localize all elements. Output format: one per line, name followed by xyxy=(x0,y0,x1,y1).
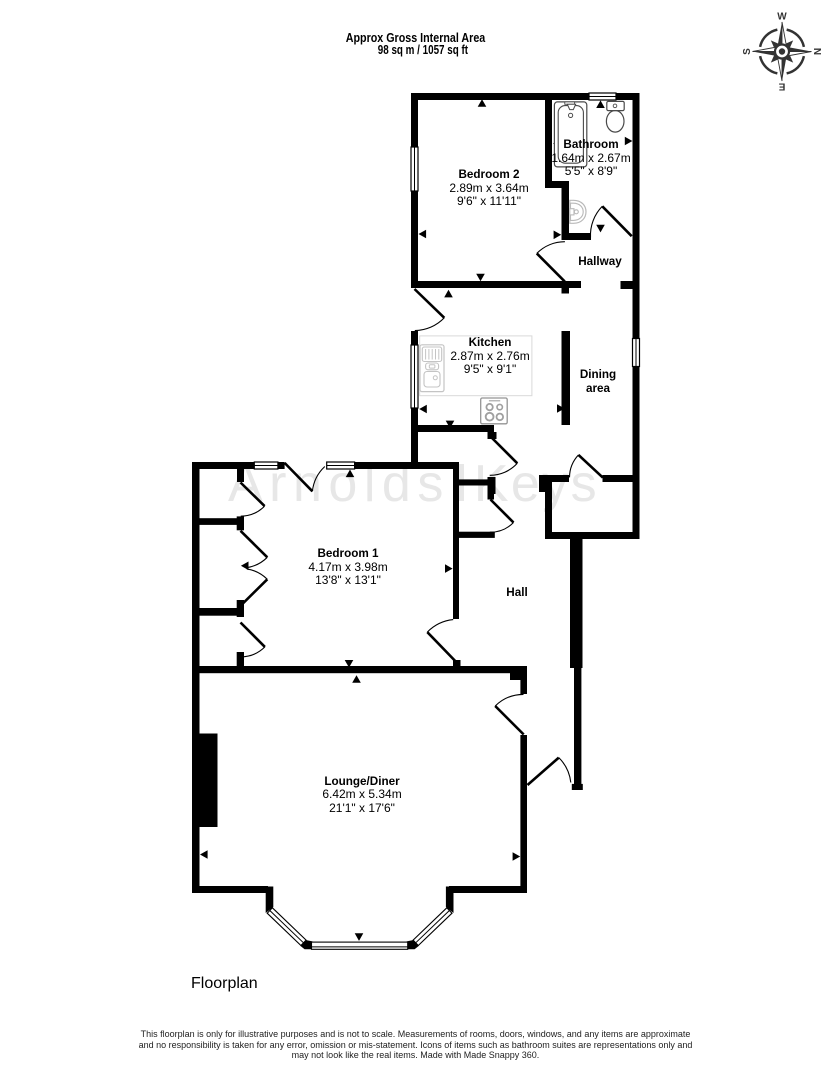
svg-text:S: S xyxy=(742,48,753,55)
svg-text:E: E xyxy=(778,80,785,91)
svg-text:W: W xyxy=(777,12,787,23)
svg-text:N: N xyxy=(811,48,822,55)
